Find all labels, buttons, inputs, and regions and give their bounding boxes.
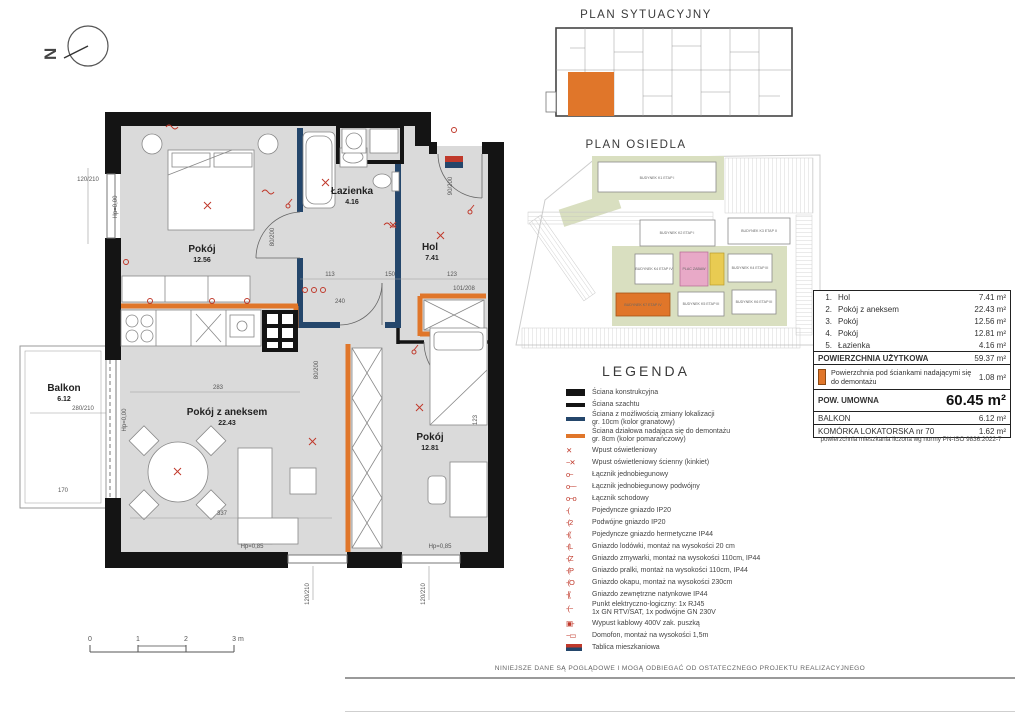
legend-item: -(L Gniazdo lodówki, montaż na wysokości… <box>566 541 798 552</box>
svg-text:6.12: 6.12 <box>57 396 71 403</box>
svg-text:Hp=0,00: Hp=0,00 <box>113 195 119 219</box>
svg-text:150: 150 <box>385 272 396 278</box>
area-table-row: 3. Pokój 12.56 m² <box>814 315 1010 327</box>
legend-symbol-icon: o~o <box>566 495 576 503</box>
svg-text:280/210: 280/210 <box>72 406 94 412</box>
bottom-line <box>345 711 1015 712</box>
orange-wall-swatch <box>818 369 826 385</box>
legend-item: -(( Pojedyncze gniazdo hermetyczne IP44 <box>566 529 798 540</box>
legend-items: Ściana konstrukcyjna Ściana szachtu Ścia… <box>566 387 798 653</box>
svg-text:3 m: 3 m <box>232 636 244 643</box>
legend-symbol-icon: -(O <box>566 579 574 587</box>
legend-item: Ściana szachtu <box>566 399 798 410</box>
area-table: 1. Hol 7.41 m² 2. Pokój z aneksem 22.43 … <box>813 290 1011 438</box>
svg-text:22.43: 22.43 <box>218 420 236 427</box>
plan-sytuacyjny-title: PLAN SYTUACYJNY <box>580 9 712 21</box>
highlighted-unit <box>568 72 614 116</box>
legend-symbol-icon: -(Z <box>566 555 573 563</box>
room-label-balkon: Balkon <box>47 383 80 394</box>
plan-sytuacyjny-drawing <box>546 28 792 116</box>
svg-text:2: 2 <box>184 636 188 643</box>
svg-text:80/200: 80/200 <box>314 360 320 379</box>
legend-item: -(Z Gniazdo zmywarki, montaż na wysokośc… <box>566 553 798 564</box>
legend-item: -( Pojedyncze gniazdo IP20 <box>566 505 798 516</box>
legend-symbol-icon <box>566 389 585 396</box>
room-label-pokoj-aneks: Pokój z aneksem <box>187 407 268 418</box>
svg-text:4.16: 4.16 <box>345 199 359 206</box>
svg-text:Hp=0,00: Hp=0,00 <box>122 408 128 432</box>
svg-text:PLAC ZABAW: PLAC ZABAW <box>682 267 706 271</box>
legend-symbol-icon: -(L <box>566 543 572 551</box>
legend-item: ~▭ Domofon, montaż na wysokości 1,5m <box>566 630 798 641</box>
svg-text:12.81: 12.81 <box>421 445 439 452</box>
svg-text:BUDYNEK K4 ETAP III: BUDYNEK K4 ETAP III <box>732 266 769 270</box>
balcony-outline <box>20 346 106 508</box>
legend-title: LEGENDA <box>602 363 798 379</box>
scale-bar: 0 1 2 3 m <box>88 636 244 652</box>
divider-line <box>345 677 1015 679</box>
legend-item: -(2 Podwójne gniazdo IP20 <box>566 517 798 528</box>
disclaimer-text: NINIEJSZE DANE SĄ POGLĄDOWE I MOGĄ ODBIE… <box>345 665 1015 672</box>
legend-item: Ściana działowa nadająca się do demontaż… <box>566 428 798 445</box>
svg-text:BUDYNEK K6 ETAP III: BUDYNEK K6 ETAP III <box>736 300 773 304</box>
legend-item: ✕ Wpust oświetleniowy <box>566 445 798 456</box>
room-label-pokoj1: Pokój <box>188 244 215 255</box>
area-row-demontaz: Powierzchnia pod ściankami nadającymi si… <box>814 364 1010 389</box>
legend-symbol-icon: ~▭ <box>566 632 575 640</box>
legend-item: Ściana z możliwością zmiany lokalizacji … <box>566 411 798 428</box>
svg-text:113: 113 <box>325 272 335 278</box>
svg-text:BUDYNEK K2 ETAP I: BUDYNEK K2 ETAP I <box>660 231 695 235</box>
legend-symbol-icon: -(2 <box>566 519 572 527</box>
legend-item: o~ Łącznik jednobiegunowy <box>566 469 798 480</box>
legend-symbol-icon: o~~ <box>566 483 576 491</box>
svg-text:120/210: 120/210 <box>421 583 427 605</box>
legend-symbol-icon: -(P <box>566 567 573 575</box>
room-label-hol: Hol <box>422 242 438 253</box>
svg-text:101/208: 101/208 <box>453 286 475 292</box>
area-row-uzytkowa: POWIERZCHNIA UŻYTKOWA 59.37 m² <box>814 351 1010 364</box>
area-row-umowna: POW. UMOWNA 60.45 m² <box>814 389 1010 411</box>
legend-symbol-icon: -(( <box>566 531 571 539</box>
legend-item: -[( Gniazdo zewnętrzne natynkowe IP44 <box>566 589 798 600</box>
legend-symbol-icon: -(~ <box>566 605 572 613</box>
legend-item: -(P Gniazdo pralki, montaż na wysokości … <box>566 565 798 576</box>
kitchen-counter <box>121 310 261 346</box>
svg-text:BUDYNEK K3 ETAP II: BUDYNEK K3 ETAP II <box>741 229 777 233</box>
legend-symbol-icon: o~ <box>566 471 573 479</box>
svg-text:120/210: 120/210 <box>305 583 311 605</box>
svg-text:BUDYNEK K5 ETAP III: BUDYNEK K5 ETAP III <box>683 302 720 306</box>
svg-text:BUDYNEK K4 ETAP IV: BUDYNEK K4 ETAP IV <box>635 267 673 271</box>
area-row-balkon: BALKON 6.12 m² <box>814 411 1010 424</box>
kitchen-shaft <box>262 310 298 352</box>
svg-text:80/200: 80/200 <box>270 227 276 246</box>
legend-item: -(O Gniazdo okapu, montaż na wysokości 2… <box>566 577 798 588</box>
svg-text:BUDYNEK K7 ETAP IV: BUDYNEK K7 ETAP IV <box>624 303 662 307</box>
svg-text:Hp=0,85: Hp=0,85 <box>241 544 265 550</box>
north-arrow-icon: N <box>41 26 108 66</box>
area-table-row: 4. Pokój 12.81 m² <box>814 327 1010 339</box>
svg-text:283: 283 <box>213 385 224 391</box>
area-table-row: 2. Pokój z aneksem 22.43 m² <box>814 303 1010 315</box>
legend: LEGENDA Ściana konstrukcyjna Ściana szac… <box>566 363 798 654</box>
svg-text:337: 337 <box>217 511 228 517</box>
room-label-pokoj2: Pokój <box>416 432 443 443</box>
north-label: N <box>41 48 60 60</box>
legend-item: ~✕ Wpust oświetleniowy ścienny (kinkiet) <box>566 457 798 468</box>
svg-text:240: 240 <box>335 299 346 305</box>
legend-symbol-icon <box>566 434 585 438</box>
legend-symbol-icon: -( <box>566 507 569 515</box>
plan-osiedla-title: PLAN OSIEDLA <box>585 139 686 151</box>
legend-item: ▣- Wypust kablowy 400V zak. puszką <box>566 618 798 629</box>
svg-text:BUDYNEK K1 ETAP I: BUDYNEK K1 ETAP I <box>640 176 675 180</box>
svg-text:120/210: 120/210 <box>77 177 99 183</box>
legend-symbol-icon <box>566 644 582 651</box>
room-label-lazienka: Łazienka <box>331 186 374 197</box>
plan-osiedla-drawing: BUDYNEK K1 ETAP I BUDYNEK K2 ETAP I BUDY… <box>516 155 820 348</box>
legend-symbol-icon <box>566 403 585 407</box>
area-table-rows: 1. Hol 7.41 m² 2. Pokój z aneksem 22.43 … <box>814 291 1010 351</box>
area-table-row: 5. Łazienka 4.16 m² <box>814 339 1010 351</box>
legend-symbol-icon <box>566 417 585 421</box>
legend-symbol-icon: ~✕ <box>566 459 575 467</box>
svg-text:7.41: 7.41 <box>425 255 439 262</box>
legend-symbol-icon: ▣- <box>566 620 574 628</box>
svg-text:170: 170 <box>58 488 69 494</box>
legend-symbol-icon: ✕ <box>566 447 571 455</box>
svg-text:1: 1 <box>136 636 140 643</box>
legend-item: Tablica mieszkaniowa <box>566 642 798 653</box>
area-table-row: 1. Hol 7.41 m² <box>814 291 1010 303</box>
floor-plan-page: { "titles": { "plan_sytuacyjny": "PLAN S… <box>0 0 1024 724</box>
svg-text:12.56: 12.56 <box>193 257 211 264</box>
legend-item: o~~ Łącznik jednobiegunowy podwójny <box>566 481 798 492</box>
legend-symbol-icon: -[( <box>566 591 570 599</box>
hol-wardrobe <box>424 300 484 330</box>
svg-text:90/200: 90/200 <box>448 176 454 195</box>
svg-text:123: 123 <box>473 414 479 425</box>
legend-item: o~o Łącznik schodowy <box>566 493 798 504</box>
svg-text:0: 0 <box>88 636 92 643</box>
area-table-footnote: powierzchnia mieszkania liczona wg normy… <box>813 436 1009 443</box>
svg-text:123: 123 <box>447 272 458 278</box>
tablica-mieszkaniowa-icon <box>445 156 463 168</box>
svg-text:Hp=0,85: Hp=0,85 <box>429 544 453 550</box>
legend-item: Ściana konstrukcyjna <box>566 387 798 398</box>
legend-item: -(~ Punkt elektryczno-logiczny: 1x RJ45 … <box>566 601 798 618</box>
